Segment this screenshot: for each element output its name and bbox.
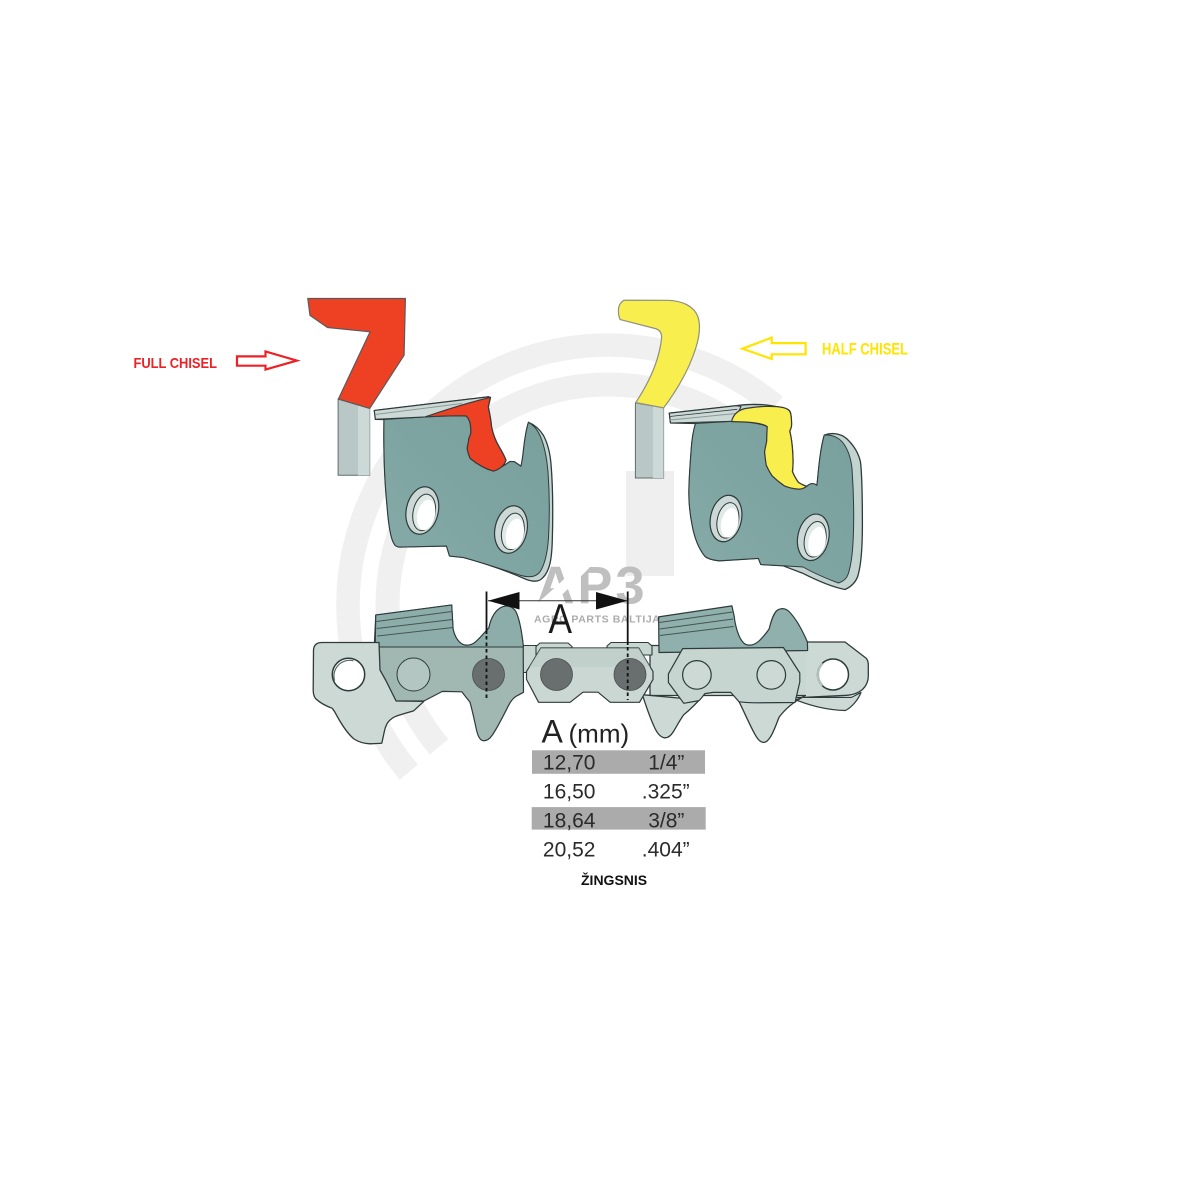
svg-text:20,52: 20,52 [543,838,596,861]
svg-text:ŽINGSNIS: ŽINGSNIS [581,871,647,888]
svg-text:18,64: 18,64 [543,809,596,832]
svg-text:HALF CHISEL: HALF CHISEL [822,341,908,359]
svg-text:.325”: .325” [642,780,690,803]
svg-text:FULL CHISEL: FULL CHISEL [134,355,218,372]
svg-text:3/8”: 3/8” [648,809,684,832]
svg-text:A: A [542,713,564,749]
svg-text:A: A [549,596,573,643]
svg-text:16,50: 16,50 [543,780,596,803]
svg-text:12,70: 12,70 [543,751,596,774]
svg-text:.404”: .404” [642,838,690,861]
svg-text:(mm): (mm) [569,719,630,749]
svg-text:1/4”: 1/4” [648,751,684,774]
